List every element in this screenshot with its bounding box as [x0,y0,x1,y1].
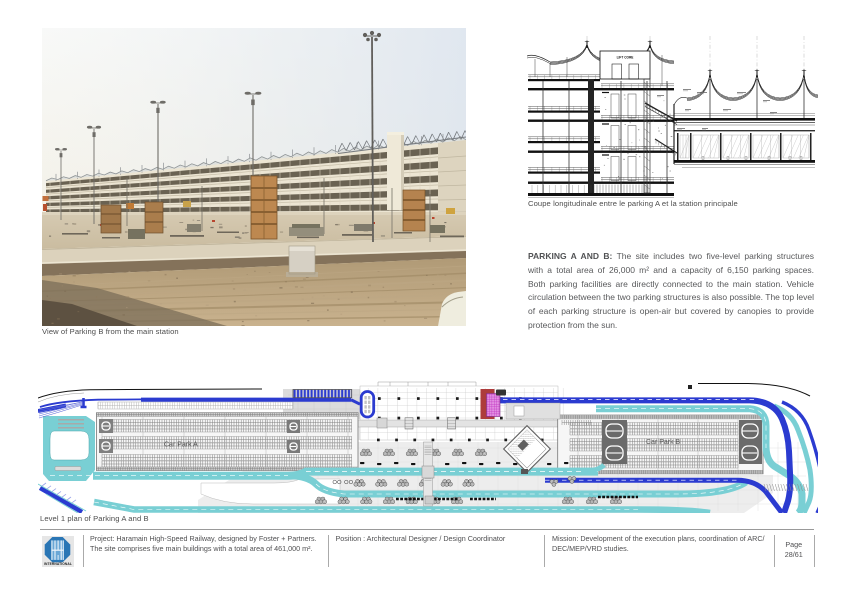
svg-text:LIFT CORE: LIFT CORE [617,56,634,60]
svg-text:Car Park B: Car Park B [646,439,681,446]
svg-text:Car Park A: Car Park A [164,442,198,449]
